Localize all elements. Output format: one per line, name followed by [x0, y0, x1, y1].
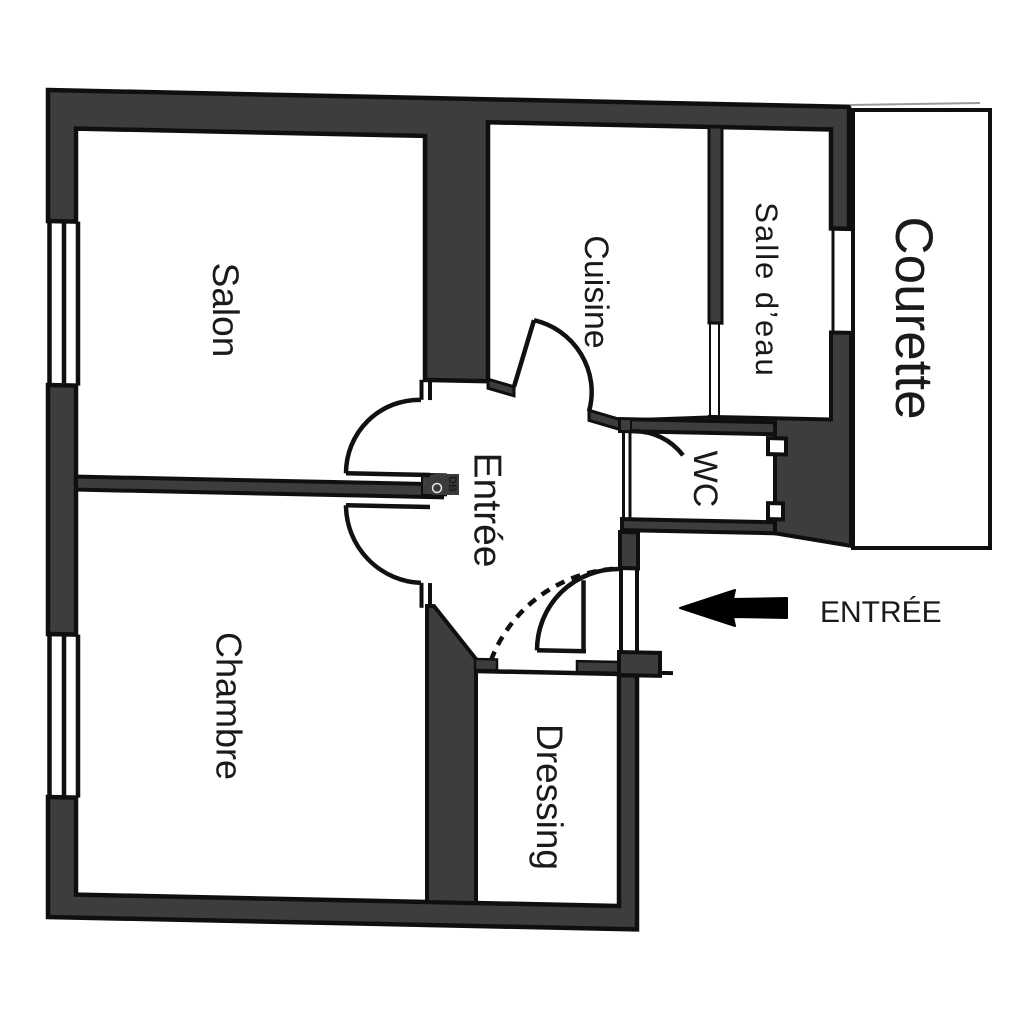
- svg-text:Courette: Courette: [884, 216, 943, 419]
- svg-text:WC: WC: [686, 451, 724, 508]
- svg-text:Cuisine: Cuisine: [577, 235, 615, 348]
- svg-text:ENTRÉE: ENTRÉE: [820, 595, 942, 629]
- svg-text:Chambre: Chambre: [208, 632, 249, 780]
- svg-text:Entrée: Entrée: [466, 453, 509, 568]
- svg-text:Salon: Salon: [205, 263, 246, 358]
- svg-text:Salle d’eau: Salle d’eau: [749, 202, 784, 377]
- svg-text:Dressing: Dressing: [529, 724, 570, 870]
- svg-text:DB: DB: [446, 476, 458, 492]
